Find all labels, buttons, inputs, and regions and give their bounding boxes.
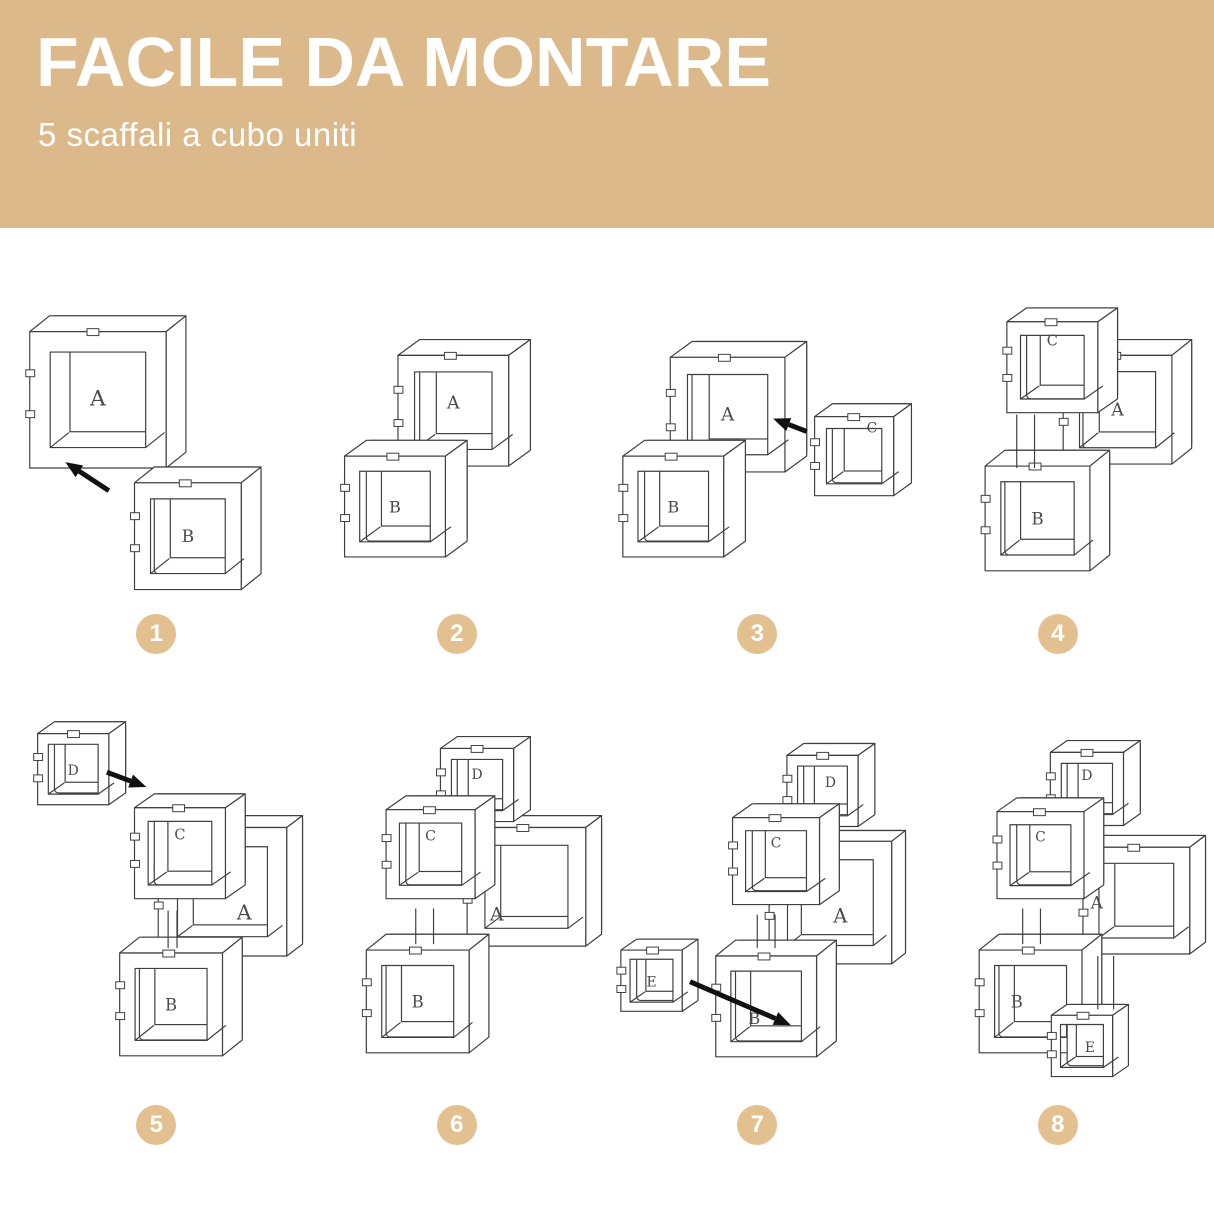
- header-banner: FACILE DA MONTARE 5 scaffali a cubo unit…: [0, 0, 1214, 228]
- assembly-step-3: ABC 3: [609, 300, 906, 654]
- svg-text:B: B: [182, 527, 195, 547]
- step-number-badge: 8: [1038, 1105, 1078, 1145]
- svg-text:B: B: [667, 497, 679, 516]
- step-number-badge: 4: [1038, 614, 1078, 654]
- step-number: 1: [150, 620, 163, 648]
- svg-text:A: A: [445, 394, 459, 414]
- svg-text:D: D: [1081, 768, 1092, 784]
- step-number-badge: 5: [136, 1105, 176, 1145]
- svg-text:C: C: [771, 836, 782, 852]
- step-number: 5: [150, 1111, 163, 1139]
- svg-text:C: C: [1046, 333, 1057, 349]
- svg-text:E: E: [646, 975, 656, 991]
- svg-text:A: A: [720, 405, 735, 426]
- step-number: 6: [450, 1111, 463, 1139]
- step-number-badge: 1: [136, 614, 176, 654]
- svg-text:A: A: [1110, 401, 1124, 421]
- assembly-step-5: ACBD 5: [8, 701, 305, 1144]
- step-number: 8: [1051, 1111, 1064, 1139]
- step-number: 3: [751, 620, 764, 648]
- assembly-diagram: ABC: [609, 300, 906, 606]
- svg-text:B: B: [411, 993, 423, 1012]
- svg-text:C: C: [425, 829, 436, 845]
- svg-text:A: A: [89, 387, 106, 412]
- step-number: 7: [751, 1111, 764, 1139]
- assembly-step-1: AB 1: [8, 300, 305, 654]
- assembly-diagram: AB: [309, 300, 606, 606]
- step-number-badge: 2: [437, 614, 477, 654]
- svg-text:A: A: [1089, 894, 1103, 914]
- step-number-badge: 7: [737, 1105, 777, 1145]
- page-subtitle: 5 scaffali a cubo uniti: [38, 116, 1214, 154]
- assembly-step-6: ADCB 6: [309, 701, 606, 1144]
- step-number-badge: 6: [437, 1105, 477, 1145]
- svg-text:D: D: [471, 767, 482, 783]
- assembly-diagram: AB: [8, 300, 305, 606]
- svg-text:B: B: [165, 996, 177, 1015]
- assembly-diagram: ACB: [910, 300, 1207, 606]
- assembly-steps-grid: AB 1 AB 2 ABC 3 ACB 4 ACBD 5 ADCB 6 ADCB…: [0, 300, 1214, 1145]
- step-number-badge: 3: [737, 614, 777, 654]
- svg-text:B: B: [1031, 508, 1043, 528]
- step-number: 2: [450, 620, 463, 648]
- svg-text:D: D: [825, 775, 836, 791]
- assembly-diagram: ADCBE: [609, 701, 906, 1096]
- svg-text:B: B: [389, 497, 401, 516]
- svg-text:A: A: [488, 904, 503, 926]
- svg-text:A: A: [832, 905, 848, 928]
- step-number: 4: [1051, 620, 1064, 648]
- svg-text:E: E: [1084, 1040, 1094, 1056]
- assembly-step-2: AB 2: [309, 300, 606, 654]
- svg-text:D: D: [68, 763, 79, 779]
- svg-text:B: B: [1010, 993, 1022, 1012]
- assembly-diagram: ADCBE: [910, 701, 1207, 1096]
- assembly-step-4: ACB 4: [910, 300, 1207, 654]
- assembly-step-8: ADCBE 8: [910, 701, 1207, 1144]
- svg-text:C: C: [867, 420, 878, 436]
- svg-text:C: C: [1035, 830, 1046, 846]
- svg-text:C: C: [174, 828, 185, 844]
- page-title: FACILE DA MONTARE: [36, 26, 1214, 100]
- assembly-diagram: ACBD: [8, 701, 305, 1096]
- svg-text:A: A: [236, 901, 253, 925]
- assembly-step-7: ADCBE 7: [609, 701, 906, 1144]
- assembly-diagram: ADCB: [309, 701, 606, 1096]
